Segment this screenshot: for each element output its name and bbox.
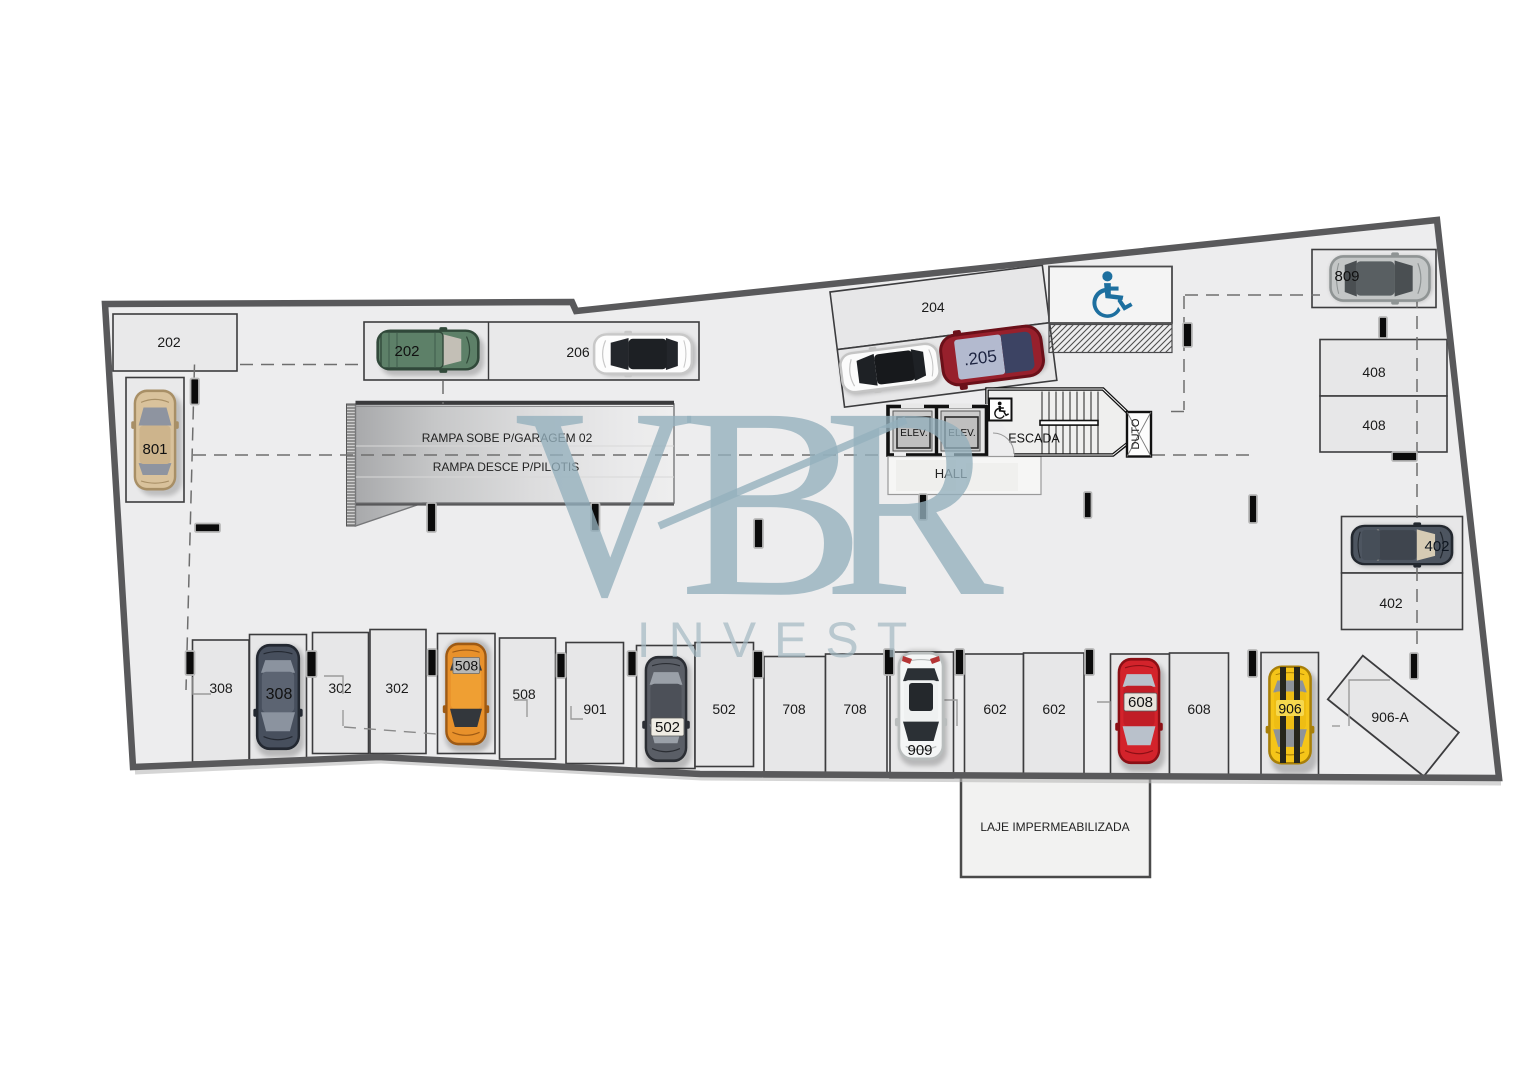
svg-text:608: 608 (1187, 701, 1211, 717)
svg-text:906: 906 (1278, 701, 1302, 717)
svg-text:INVEST: INVEST (637, 612, 926, 668)
svg-text:402: 402 (1424, 538, 1449, 555)
svg-text:408: 408 (1362, 417, 1386, 433)
svg-text:502: 502 (712, 701, 736, 717)
svg-text:302: 302 (385, 680, 409, 696)
svg-text:DUTO: DUTO (1130, 418, 1142, 449)
svg-text:708: 708 (782, 701, 806, 717)
svg-text:502: 502 (655, 719, 680, 736)
svg-text:302: 302 (328, 680, 352, 696)
svg-text:901: 901 (583, 701, 607, 717)
svg-text:801: 801 (142, 441, 167, 458)
svg-text:V: V (514, 352, 694, 653)
svg-text:708: 708 (843, 701, 867, 717)
svg-text:909: 909 (907, 742, 932, 759)
svg-text:202: 202 (394, 343, 419, 360)
svg-text:402: 402 (1379, 595, 1403, 611)
svg-text:408: 408 (1362, 364, 1386, 380)
svg-text:ESCADA: ESCADA (1008, 432, 1060, 446)
svg-text:308: 308 (266, 686, 293, 703)
svg-text:508: 508 (455, 658, 479, 674)
svg-text:608: 608 (1128, 694, 1153, 711)
svg-text:LAJE IMPERMEABILIZADA: LAJE IMPERMEABILIZADA (980, 820, 1129, 834)
svg-text:602: 602 (1042, 701, 1066, 717)
svg-text:202: 202 (157, 334, 181, 350)
svg-text:809: 809 (1334, 268, 1359, 285)
svg-text:204: 204 (921, 299, 945, 315)
svg-text:R: R (823, 352, 1005, 653)
svg-text:308: 308 (209, 680, 233, 696)
svg-text:906-A: 906-A (1371, 709, 1409, 725)
svg-text:602: 602 (983, 701, 1007, 717)
